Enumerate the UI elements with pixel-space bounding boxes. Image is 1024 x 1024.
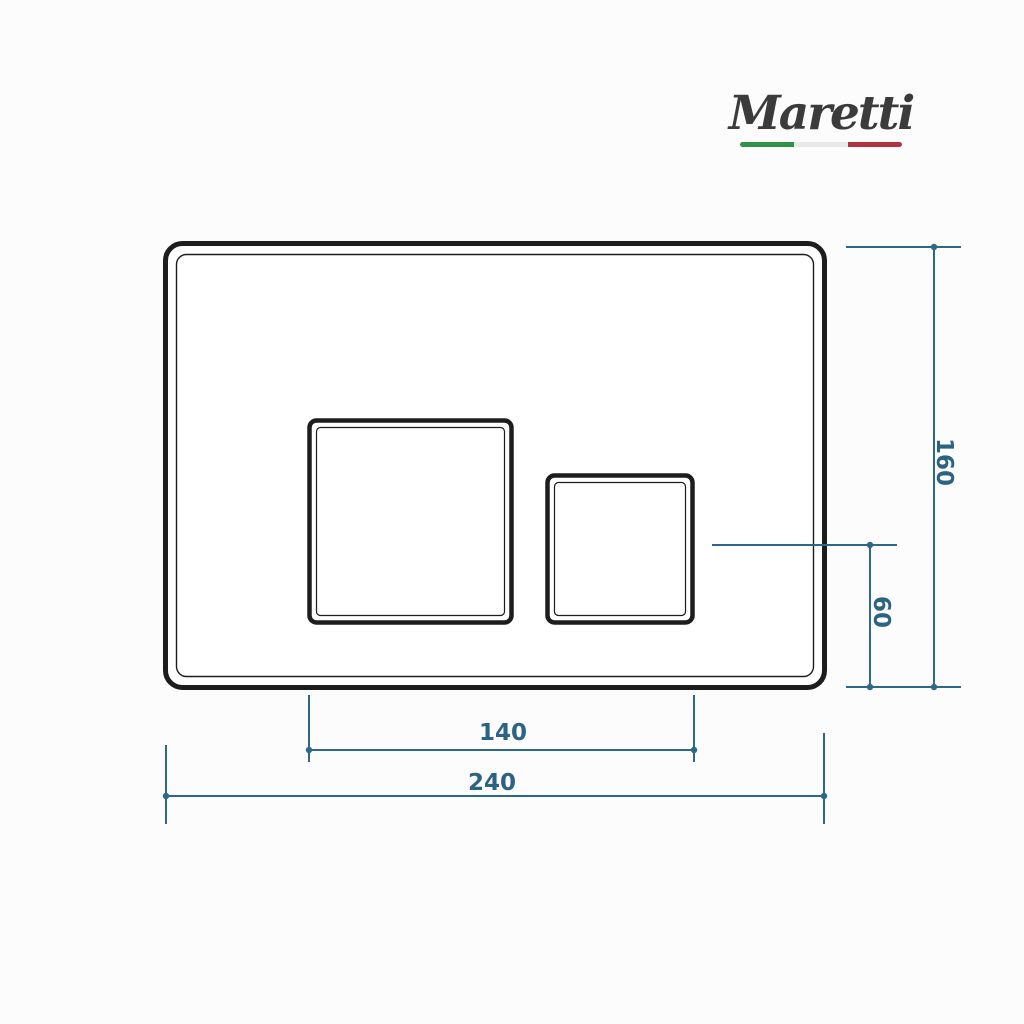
large-flush-button: [310, 421, 512, 623]
dimension-label-140: 140: [479, 720, 527, 746]
small-button-outline: [548, 476, 693, 623]
dimension-plate-height: 160: [846, 244, 961, 690]
dimension-dot: [931, 244, 937, 250]
small-flush-button: [548, 476, 693, 623]
dimension-buttons-span: 140: [306, 695, 697, 762]
dimension-label-160: 160: [931, 438, 957, 486]
dimension-dot: [306, 747, 312, 753]
dimension-dot: [821, 793, 827, 799]
dimension-dot: [931, 684, 937, 690]
dimension-dot: [867, 684, 873, 690]
dimension-label-60: 60: [868, 596, 894, 628]
dimension-plate-width: 240: [163, 733, 827, 824]
dimension-label-240: 240: [468, 770, 516, 796]
dimension-dot: [867, 542, 873, 548]
flush-plate-drawing: 160 60 140 240: [0, 0, 1024, 1024]
dimension-dot: [163, 793, 169, 799]
large-button-outline: [310, 421, 512, 623]
technical-drawing-page: Maretti 160: [0, 0, 1024, 1024]
dimension-dot: [691, 747, 697, 753]
